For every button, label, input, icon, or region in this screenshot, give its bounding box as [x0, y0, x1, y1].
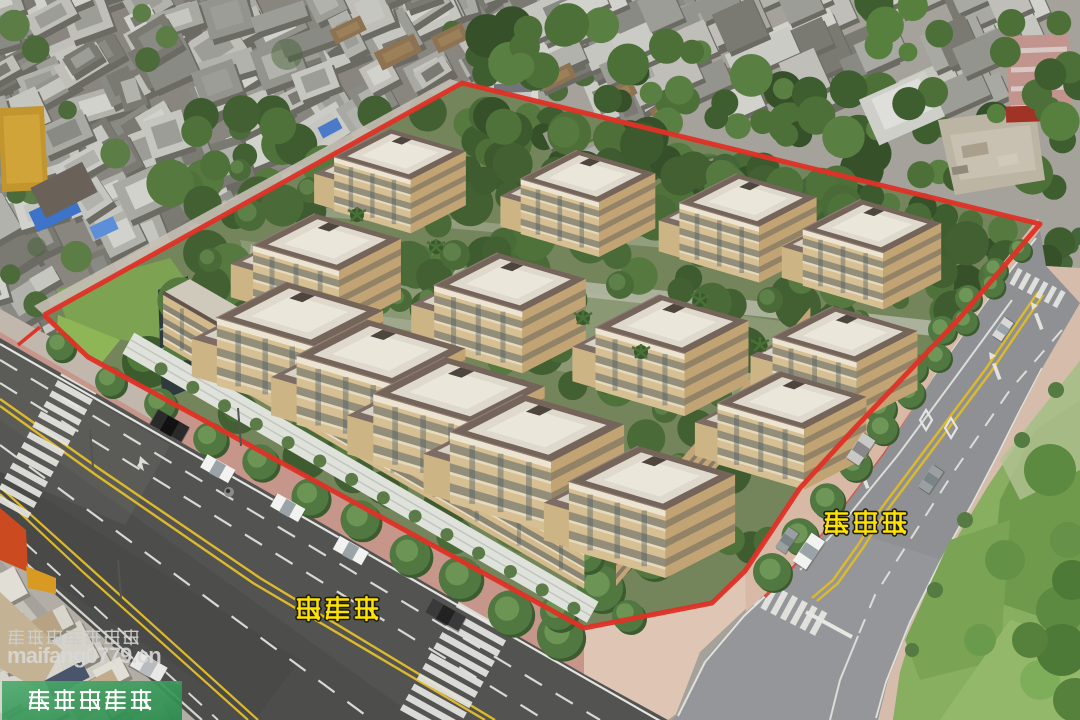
svg-text:maifang0779.cn: maifang0779.cn — [7, 643, 161, 668]
